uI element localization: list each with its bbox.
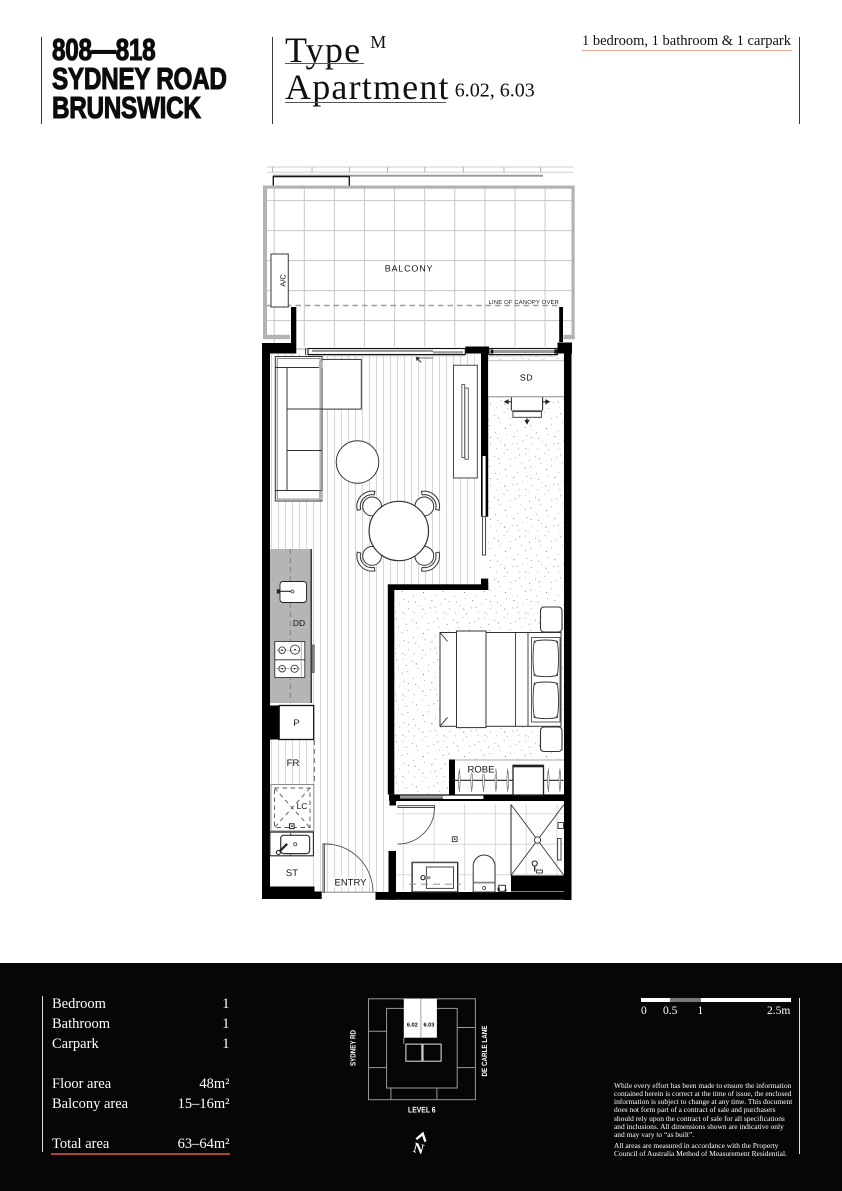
svg-text:DD: DD	[293, 618, 305, 628]
svg-text:LEVEL 6: LEVEL 6	[408, 1106, 436, 1115]
svg-text:SD: SD	[520, 373, 533, 383]
svg-text:DE CARLE LANE: DE CARLE LANE	[480, 1026, 489, 1077]
svg-text:P: P	[293, 718, 299, 729]
svg-text:6.03: 6.03	[423, 1023, 434, 1029]
svg-text:SYDNEY RD: SYDNEY RD	[349, 1030, 358, 1066]
svg-text:ST: ST	[286, 868, 298, 879]
svg-text:A/C: A/C	[278, 274, 287, 287]
svg-text:ENTRY: ENTRY	[334, 878, 367, 889]
svg-text:N: N	[411, 1140, 426, 1158]
svg-text:6.02: 6.02	[407, 1023, 418, 1029]
svg-text:BALCONY: BALCONY	[385, 264, 434, 274]
svg-text:LC: LC	[297, 801, 308, 811]
svg-text:LINE OF CANOPY OVER: LINE OF CANOPY OVER	[489, 299, 559, 306]
svg-text:ROBE: ROBE	[468, 765, 495, 776]
svg-text:FR: FR	[287, 758, 300, 769]
